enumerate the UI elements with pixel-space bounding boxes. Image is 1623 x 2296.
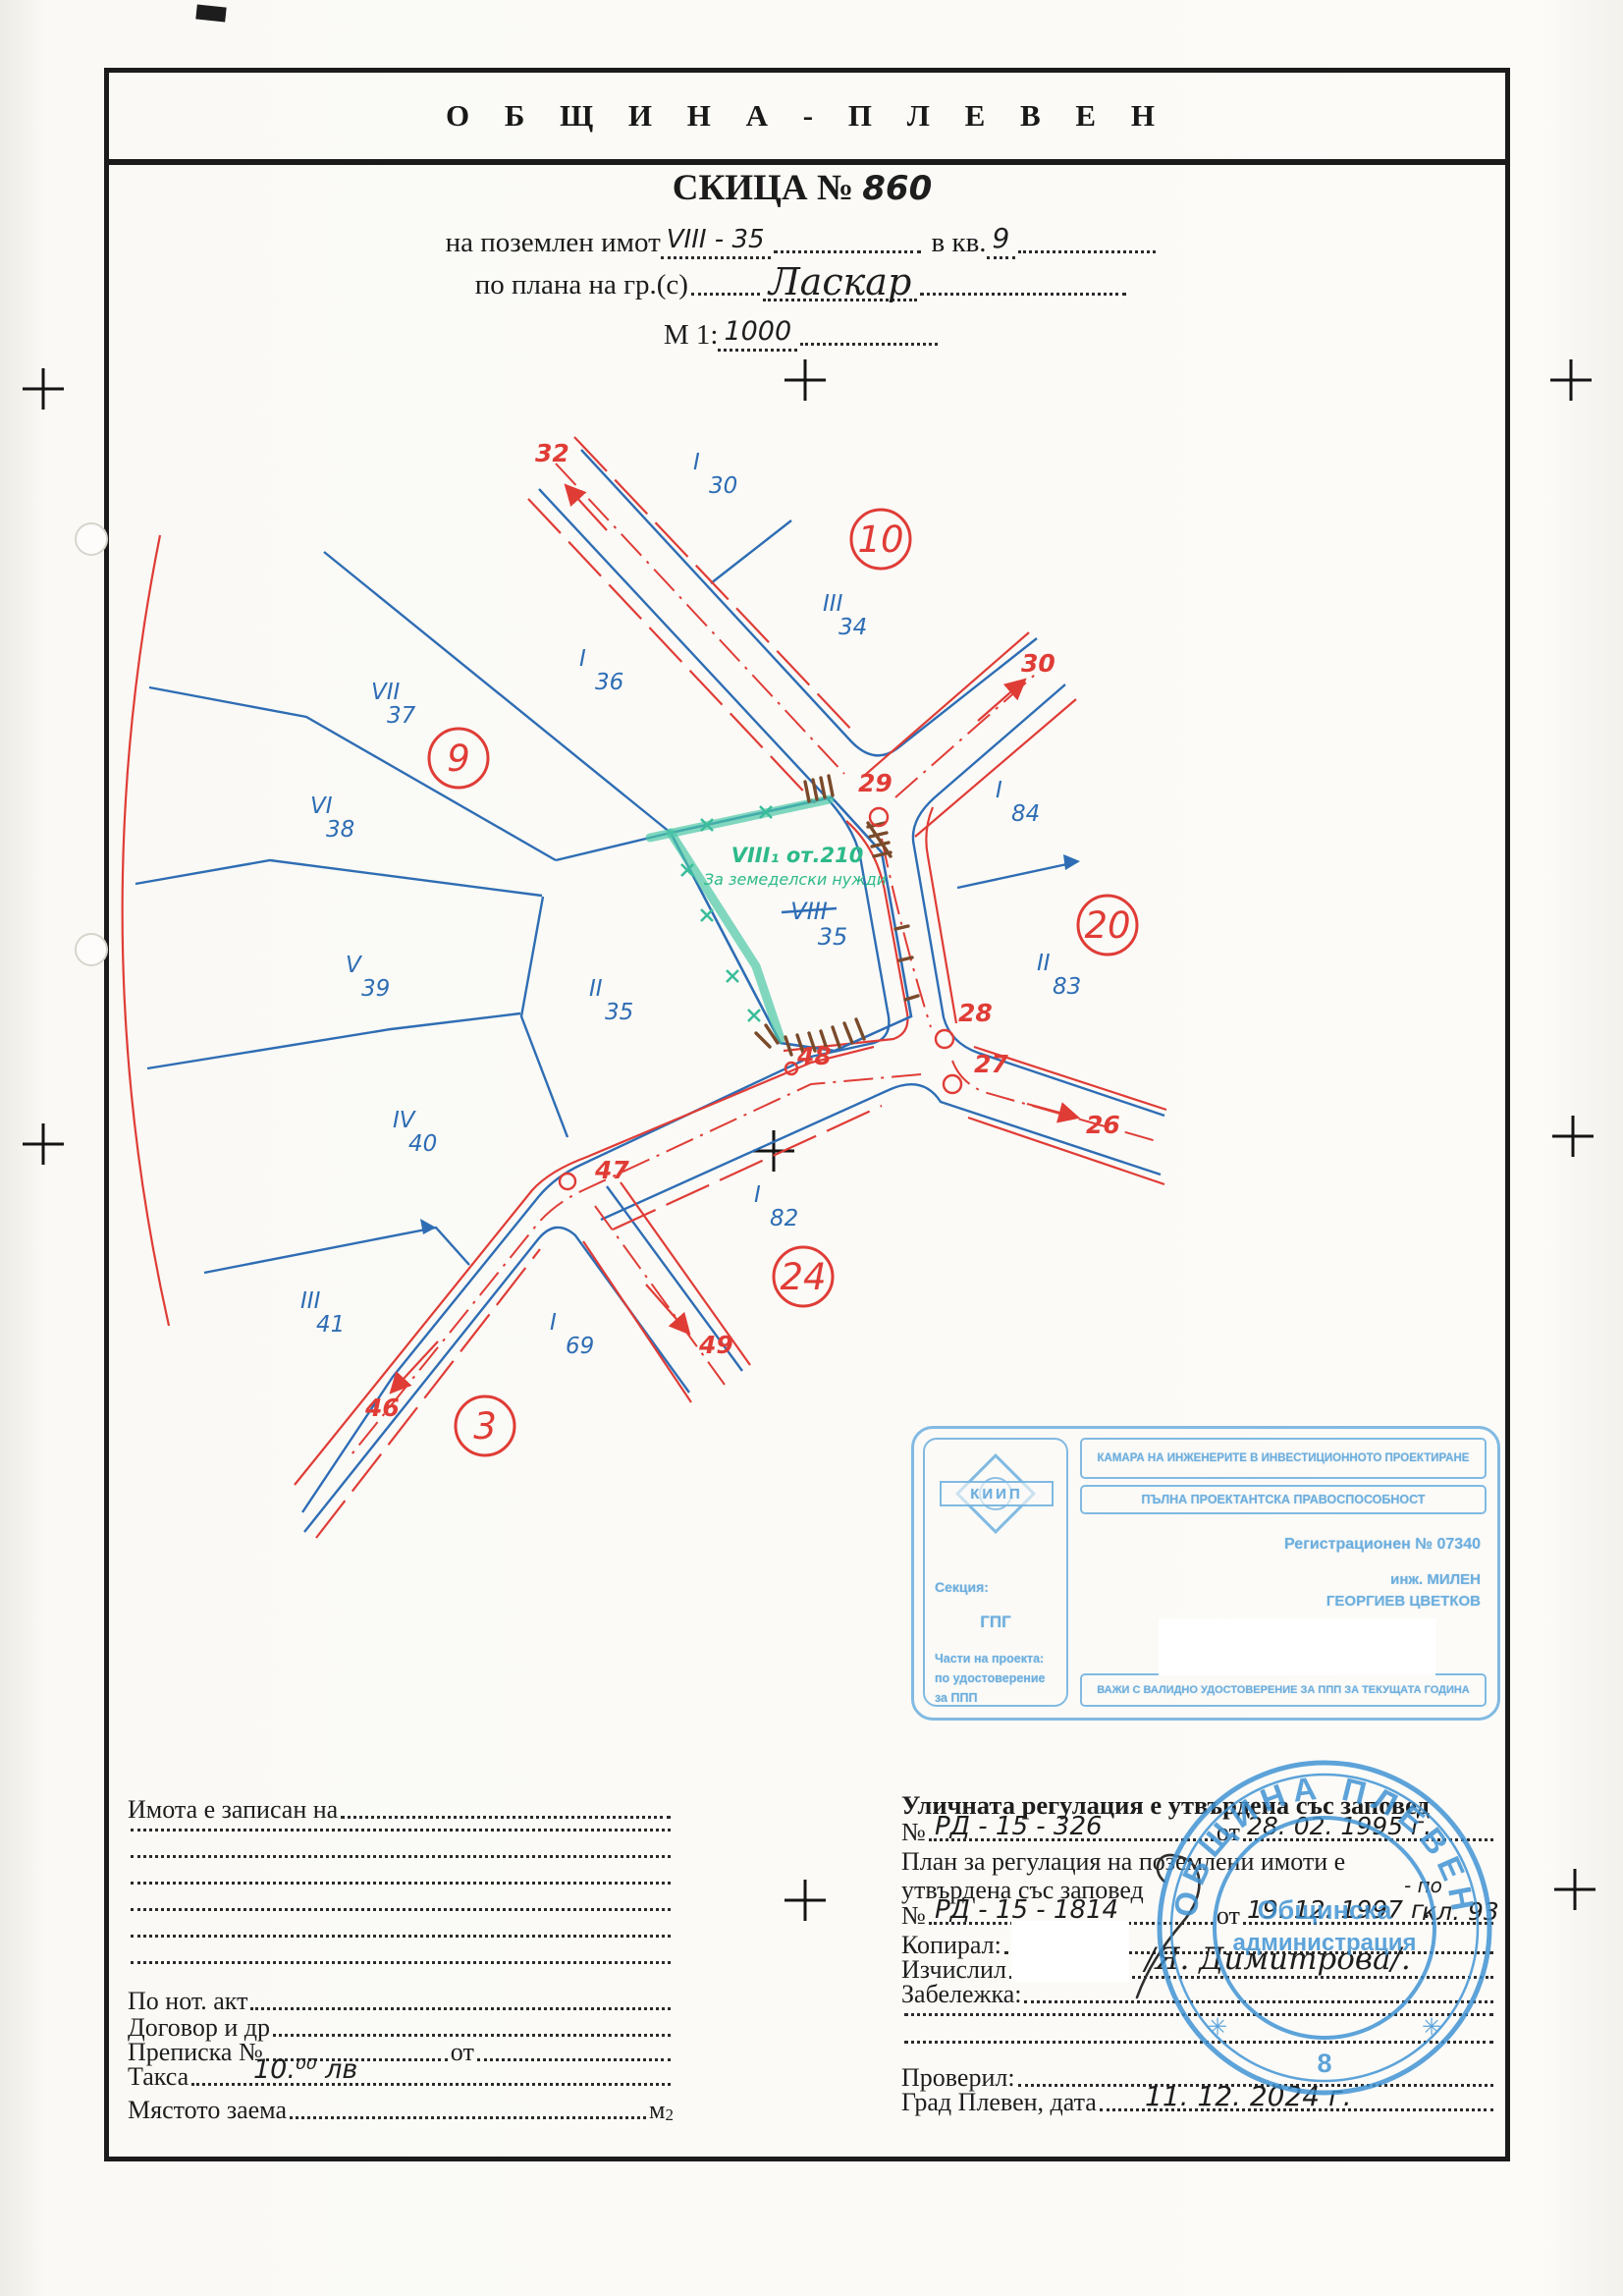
scale-label: М 1: <box>664 319 719 352</box>
dotted-rule <box>250 2005 671 2010</box>
label: Такса <box>128 2062 189 2092</box>
label: Мястото заема <box>128 2096 287 2125</box>
scale-line: М 1: 1000 <box>104 316 1500 352</box>
dotted-rule <box>131 1933 671 1938</box>
parcel-line: на поземлен имот VIII - 35 в кв. 9 <box>104 222 1500 259</box>
dotted-rule <box>341 1814 671 1819</box>
dotted-rule <box>1024 1998 1493 2003</box>
field-fee: Такса 10.⁰⁰ лв <box>128 2062 674 2092</box>
municipality-title: О Б Щ И Н А - П Л Е В Е Н <box>446 98 1168 134</box>
label: Забележка: <box>901 1980 1021 2009</box>
kiip-parts-3: за ППП <box>925 1691 1066 1705</box>
kiip-section-value: ГПГ <box>925 1613 1066 1632</box>
scale-handwritten: 1000 <box>718 316 797 352</box>
kiip-engineer-line2: ГЕОРГИЕВ ЦВЕТКОВ <box>1326 1593 1481 1610</box>
parcel-line-prefix: на поземлен имот <box>446 227 661 259</box>
plan-line: по плана на гр.(с) Ласкар <box>104 267 1500 301</box>
dotted-rule <box>131 1853 671 1858</box>
order2-note-top-handwritten: - по <box>1404 1874 1442 1897</box>
order1-number-handwritten: РД - 15 - 326 <box>935 1812 1103 1841</box>
dotted-rule <box>774 248 921 253</box>
scanned-sketch-page: О Б Щ И Н А - П Л Е В Е Н СКИЦА № 860 на… <box>0 0 1623 2296</box>
label: Град Плевен, дата <box>901 2088 1097 2117</box>
label: Имота е записан на <box>128 1795 338 1825</box>
kiip-section-label: Секция: <box>925 1579 1066 1595</box>
field-recorded-to: Имота е записан на <box>128 1795 674 1825</box>
field-area: Мястото заема м2 <box>128 2096 674 2125</box>
kiip-parts-2: по удостоверение <box>925 1671 1066 1685</box>
city-date-handwritten: 11. 12. 2024 г. <box>1145 2080 1352 2112</box>
dotted-rule <box>131 1827 671 1831</box>
order1-date-handwritten: 28. 02. 1995 г. <box>1247 1812 1432 1840</box>
order2-date-handwritten: 19. 12. 1997 г. <box>1247 1895 1432 1924</box>
redaction-box <box>1159 1618 1435 1675</box>
kiip-validity-line: ВАЖИ С ВАЛИДНО УДОСТОВЕРЕНИЕ ЗА ППП ЗА Т… <box>1080 1673 1487 1707</box>
punch-hole <box>75 933 108 966</box>
signature-flourish <box>1111 1842 1249 2009</box>
kiip-reg-number: Регистрационен № 07340 <box>1284 1536 1481 1554</box>
scan-artifact <box>195 4 226 22</box>
settlement-handwritten: Ласкар <box>763 267 917 301</box>
label-no: № <box>901 1818 926 1847</box>
registration-cross <box>1548 357 1594 403</box>
kiip-logo-icon: КИИП <box>955 1453 1038 1536</box>
sketch-title-label: СКИЦА № <box>673 168 853 208</box>
area-sup: 2 <box>666 2105 675 2125</box>
quarter-handwritten: 9 <box>987 222 1016 259</box>
parcel-id-handwritten: VIII - 35 <box>661 225 771 259</box>
kiip-left-panel: КИИП Секция: ГПГ Части на проекта: по уд… <box>923 1438 1068 1707</box>
dotted-rule <box>1018 248 1156 253</box>
dotted-rule <box>691 291 760 296</box>
label: По нот. акт <box>128 1987 247 2016</box>
plan-line-prefix: по плана на гр.(с) <box>475 269 688 301</box>
kiip-logo-text: КИИП <box>940 1481 1054 1506</box>
label-no: № <box>901 1901 926 1931</box>
dotted-rule <box>290 2114 646 2119</box>
registration-cross <box>1550 1114 1596 1159</box>
dotted-rule <box>131 1906 671 1911</box>
kiip-parts-1: Части на проекта: <box>925 1652 1066 1666</box>
registration-cross <box>21 1121 66 1167</box>
kiip-capacity-line: ПЪЛНА ПРОЕКТАНТСКА ПРАВОСПОСОБНОСТ <box>1080 1485 1487 1514</box>
dotted-rule <box>904 2011 1493 2016</box>
dotted-rule <box>131 1880 671 1885</box>
registration-cross <box>1552 1867 1597 1912</box>
field-notary-act: По нот. акт <box>128 1987 674 2016</box>
fee-handwritten: 10.⁰⁰ лв <box>253 2054 357 2085</box>
sketch-number: 860 <box>862 169 932 208</box>
kiip-chamber-line: КАМАРА НА ИНЖЕНЕРИТЕ В ИНВЕСТИЦИОННОТО П… <box>1080 1438 1487 1479</box>
area-unit: м <box>649 2096 665 2125</box>
order2-note-handwritten: кл. 93 <box>1422 1897 1499 1926</box>
punch-hole <box>75 522 108 556</box>
dotted-rule <box>273 2032 671 2037</box>
field-city-date: Град Плевен, дата 11. 12. 2024 г. <box>901 2088 1496 2117</box>
dotted-rule <box>920 291 1126 296</box>
kiip-stamp: КИИП Секция: ГПГ Части на проекта: по уд… <box>911 1426 1500 1721</box>
quarter-label: в кв. <box>932 227 987 259</box>
sketch-title: СКИЦА № 860 <box>104 167 1500 209</box>
dotted-rule <box>477 2056 671 2061</box>
dotted-rule <box>131 1959 671 1964</box>
header-band: О Б Щ И Н А - П Л Е В Е Н <box>109 73 1505 165</box>
dotted-rule <box>800 341 938 346</box>
dotted-rule <box>904 2039 1493 2044</box>
kiip-engineer-line1: инж. МИЛЕН <box>1390 1571 1481 1588</box>
registration-cross <box>21 366 66 411</box>
redaction-box <box>1011 1921 1129 1982</box>
